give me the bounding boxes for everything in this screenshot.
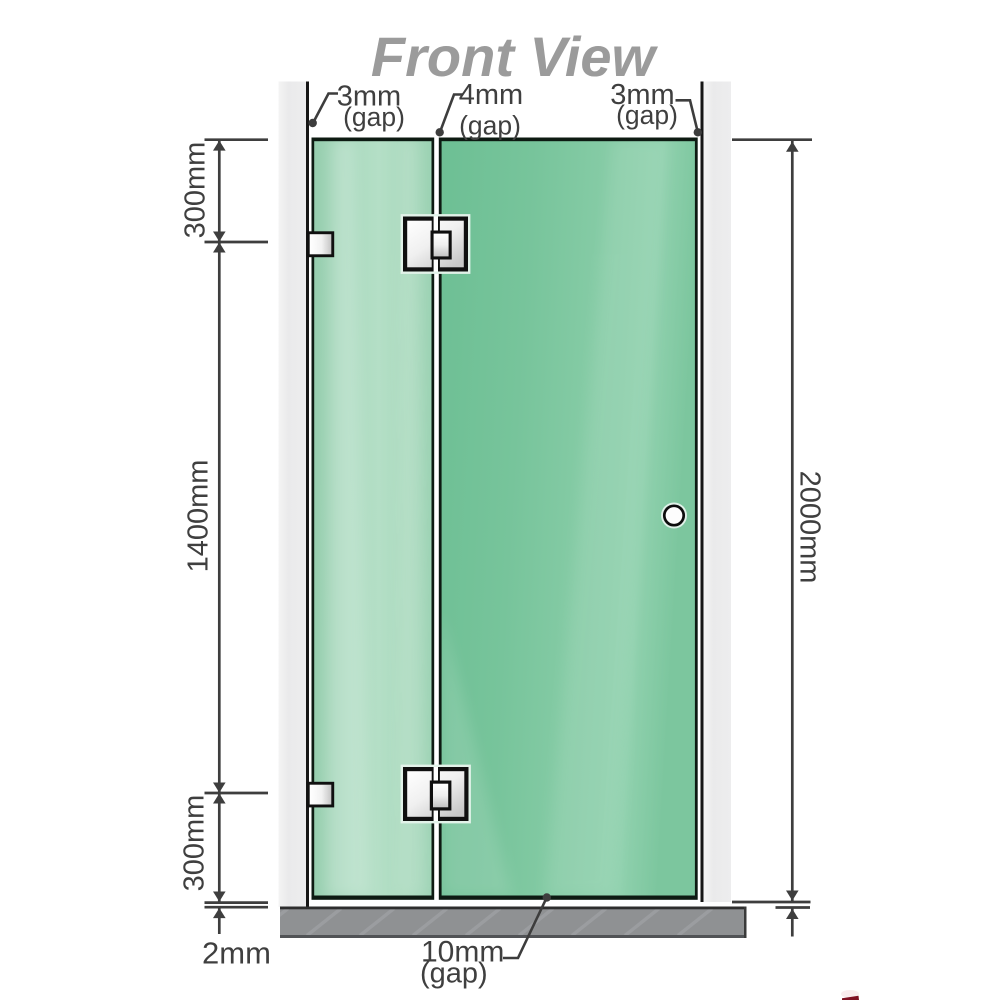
svg-text:2000mm: 2000mm xyxy=(793,471,825,584)
svg-text:(gap): (gap) xyxy=(343,102,405,132)
svg-text:(gap): (gap) xyxy=(420,958,488,990)
svg-text:(gap): (gap) xyxy=(459,111,521,141)
svg-text:4mm: 4mm xyxy=(459,79,523,111)
svg-text:1400mm: 1400mm xyxy=(183,460,215,573)
svg-text:2mm: 2mm xyxy=(202,936,271,971)
svg-text:(gap): (gap) xyxy=(616,100,678,130)
svg-text:300mm: 300mm xyxy=(179,795,211,892)
svg-text:300mm: 300mm xyxy=(180,142,212,239)
